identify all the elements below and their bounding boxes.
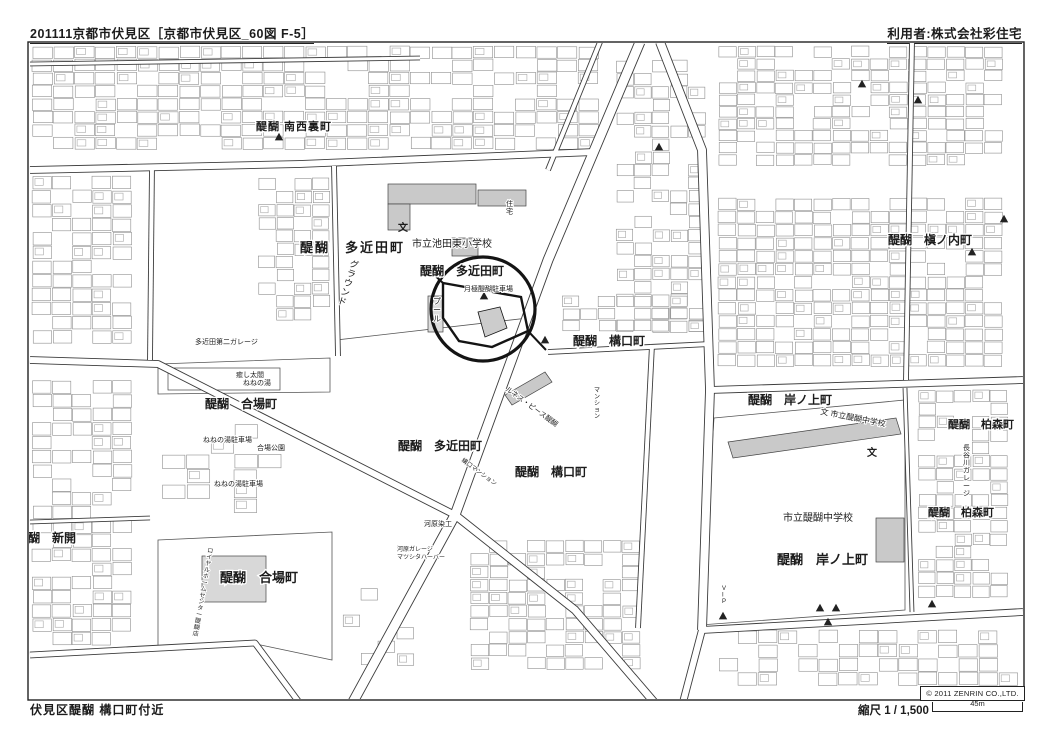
copyright-box: © 2011 ZENRIN CO.,LTD.: [920, 686, 1025, 701]
map-label: 多近田第二ガレージ: [195, 337, 258, 346]
map-label: 醍醐 岸ノ上町: [777, 552, 868, 567]
triangle-marker: [541, 336, 549, 344]
map-label: 醍醐 柏森町: [948, 417, 1014, 431]
map-label: ねねの湯駐車場: [203, 435, 252, 444]
map-label: 市立池田東小学校: [412, 237, 492, 250]
map-label: 市立醍醐中学校: [783, 511, 853, 524]
map-label: 醍醐 合場町: [220, 570, 298, 585]
map-label: 醍醐 南西裏町: [256, 119, 332, 133]
map-label: 醍醐 合場町: [205, 396, 277, 411]
map-label: マンション: [594, 387, 600, 420]
map-canvas: 文文醍醐 南西裏町醍醐 多近田町市立池田東小学校醍醐 多近田町グラウンドプール月…: [0, 0, 1053, 744]
map-label: 醍醐 多近田町: [300, 240, 405, 255]
map-label: 醍醐 構口町: [573, 333, 645, 348]
scale-text: 縮尺 1 / 1,500: [858, 702, 929, 718]
map-label: 醍醐 新開: [16, 530, 76, 545]
school-symbol: 文: [398, 221, 409, 234]
map-label: 河原染工: [424, 519, 452, 528]
map-label: 月極醍醐駐車場: [464, 284, 513, 293]
map-label: 醍醐 構口町: [515, 464, 587, 479]
map-label: マツシタハーバー: [397, 553, 445, 561]
map-label: 住宅: [506, 199, 513, 216]
map-label: 醍醐 槇ノ内町: [888, 232, 972, 247]
map-label: ねねの湯: [243, 378, 271, 387]
map-label: 癒し太閤: [236, 370, 264, 379]
map-sheet: { "page": { "header_left": "201111京都市伏見区…: [0, 0, 1053, 744]
scale-bar: 45m: [932, 702, 1023, 712]
map-label: 醍醐 多近田町: [420, 263, 504, 278]
map-label: ねねの湯駐車場: [214, 479, 263, 488]
map-label: プール: [433, 297, 441, 323]
area-caption: 伏見区醍醐 構口町付近: [30, 701, 164, 718]
map-label: 醍醐 岸ノ上町: [748, 392, 832, 407]
triangle-marker: [928, 600, 936, 608]
map-label: 醍醐 多近田町: [398, 438, 482, 453]
map-content: 文文醍醐 南西裏町醍醐 多近田町市立池田東小学校醍醐 多近田町グラウンドプール月…: [16, 42, 1023, 744]
school-symbol: 文: [867, 446, 878, 459]
map-label: 長谷川ガレージ: [963, 444, 970, 497]
map-label: 醍醐 柏森町: [928, 505, 994, 519]
map-label: 合場公園: [257, 443, 285, 452]
map-label: 河原ガレージ: [397, 545, 433, 553]
